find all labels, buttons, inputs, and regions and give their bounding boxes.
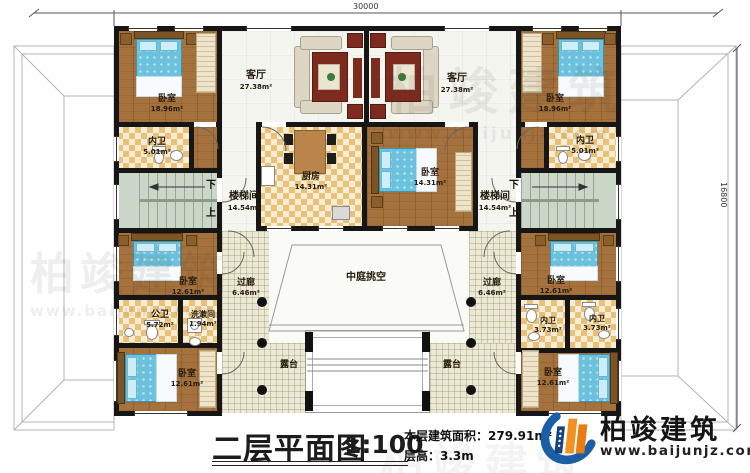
stair-down-label-left: 下: [206, 176, 216, 191]
floor-area-note: 本层建筑面积：279.91m²: [404, 427, 552, 444]
title-underline: [212, 461, 408, 466]
brand-logo-icon: [538, 406, 596, 468]
stair-down-label-right: 下: [509, 176, 519, 191]
porch-railing: [307, 359, 428, 371]
brand-name: 柏竣建筑: [600, 408, 720, 447]
stair-up-label-right: 上: [509, 204, 519, 219]
brand-website: www.baijunjz.com: [600, 443, 750, 459]
floor-height-note: 层高：3.3m: [404, 447, 474, 464]
logo-bar-orange-1: [565, 419, 577, 454]
door-arcs: [194, 122, 547, 374]
plan-line-overlay: [0, 0, 750, 473]
floor-plan-canvas: 30000 16800: [0, 0, 750, 473]
stair-up-label-left: 上: [206, 204, 216, 219]
atrium-outline: [269, 245, 464, 331]
